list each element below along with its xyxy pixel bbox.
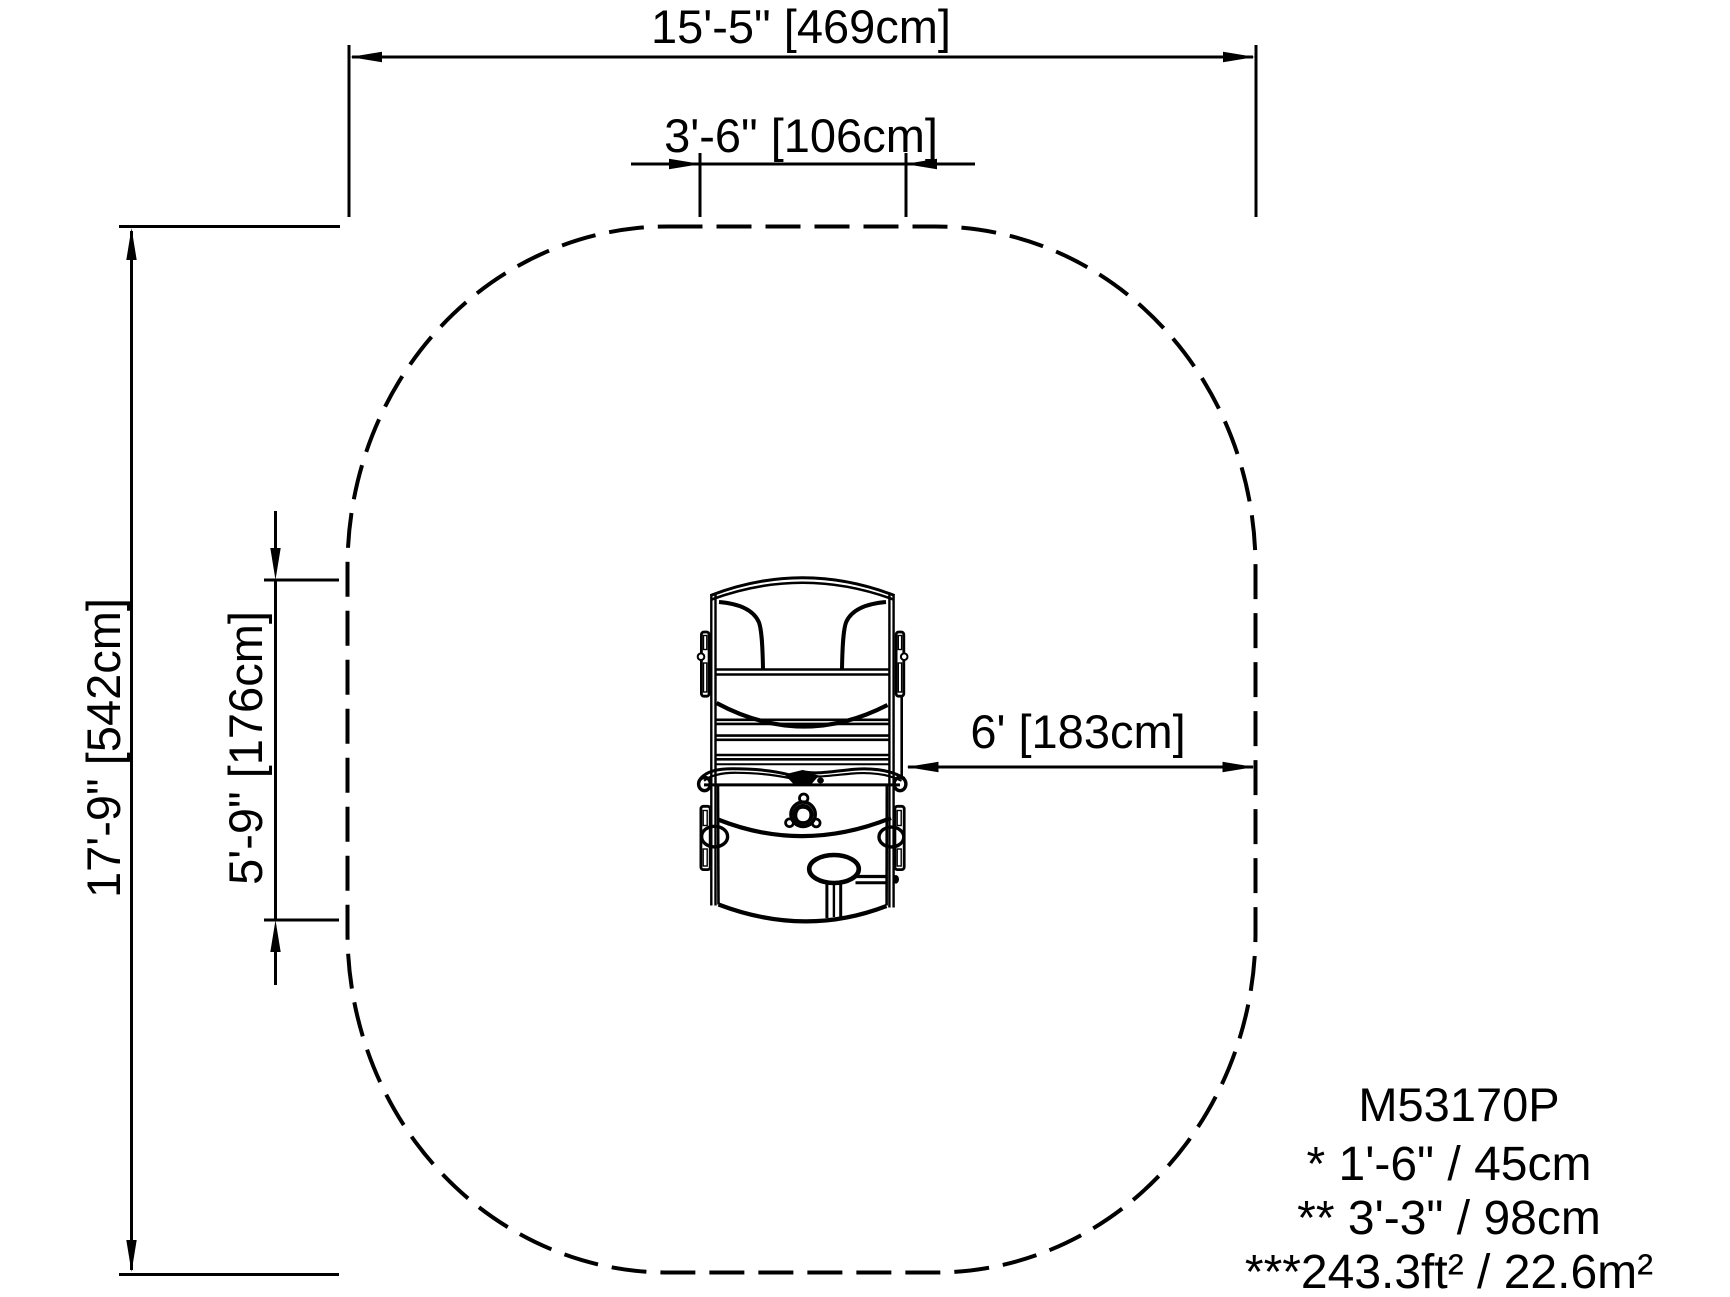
svg-text:17'-9" [542cm]: 17'-9" [542cm] xyxy=(77,598,130,898)
svg-text:***243.3ft² / 22.6m²: ***243.3ft² / 22.6m² xyxy=(1245,1246,1653,1297)
svg-text:15'-5" [469cm]: 15'-5" [469cm] xyxy=(651,0,951,53)
svg-text:6' [183cm]: 6' [183cm] xyxy=(970,705,1185,758)
svg-text:* 1'-6" / 45cm: * 1'-6" / 45cm xyxy=(1307,1138,1592,1191)
svg-text:5'-9" [176cm]: 5'-9" [176cm] xyxy=(219,611,272,885)
svg-text:3'-6" [106cm]: 3'-6" [106cm] xyxy=(664,109,938,162)
svg-text:** 3'-3" / 98cm: ** 3'-3" / 98cm xyxy=(1297,1192,1601,1245)
svg-text:M53170P: M53170P xyxy=(1358,1078,1559,1131)
